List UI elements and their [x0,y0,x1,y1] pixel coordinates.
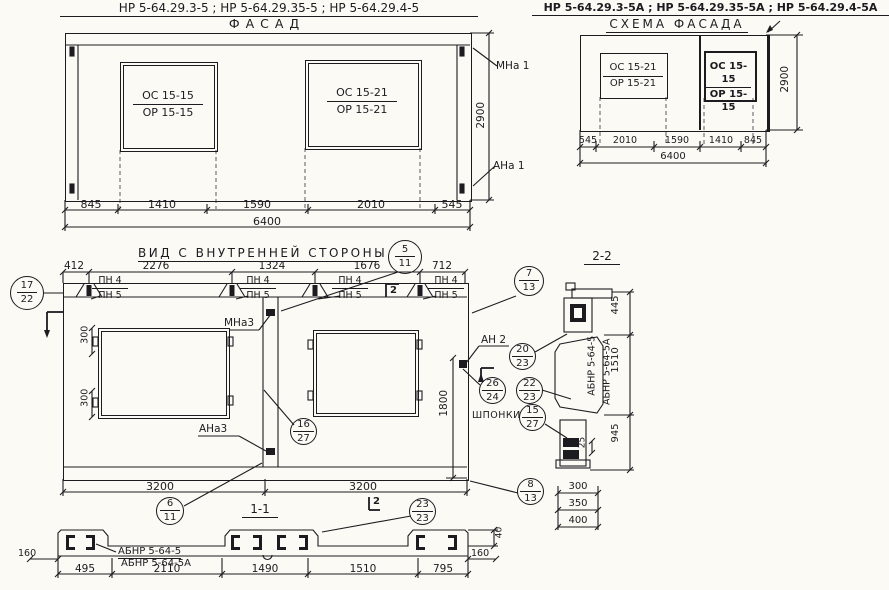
pn-top: ПН 4 [240,275,276,289]
inner-anchor-mark-ana3: АНа3 [199,424,227,435]
pn-bottom: ПН 5 [332,289,368,302]
inner-dim-300-bottom: 300 [80,381,90,415]
balloon-top-number: 23 [414,500,431,511]
balloon-bottom-number: 13 [519,280,540,293]
inner-dim-2276: 2276 [131,261,181,272]
sec22-dim-25: 25 [579,430,588,456]
window-mark-bottom: ОР 15-21 [603,77,663,91]
balloon-bottom-number: 23 [512,356,533,369]
schema-dim-2010: 2010 [605,136,645,146]
balloon-bottom-number: 22 [17,292,38,305]
inner-window-left-inner-frame [101,331,227,416]
pn-label-4: ПН 4 ПН 5 [428,275,464,302]
balloon-bottom-number: 11 [160,510,181,523]
sec11-dim-40: 40 [496,522,505,544]
sec11-dim-2110: 2110 [142,564,192,575]
sec11-dim-160-right: 160 [471,549,489,559]
balloon-bottom-number: 27 [522,417,543,430]
balloon-top-number: 26 [484,379,501,390]
balloon-bottom-number: 11 [395,256,416,269]
facade-dim-2010: 2010 [341,199,401,210]
schema-window-left-label: ОС 15-21 ОР 15-21 [603,62,663,90]
inner-dim-300-top: 300 [80,318,90,352]
section-cut-2-bottom-label: 2 [373,497,380,507]
balloon-top-number: 8 [525,480,535,491]
facade-window-left-label: ОС 15-15 ОР 15-15 [133,89,203,120]
inner-view-title: ВИД С ВНУТРЕННЕЙ СТОРОНЫ [138,247,378,262]
schema-window-right-label: ОС 15-15 ОР 15-15 [706,61,751,114]
pn-top: ПН 4 [332,275,368,289]
schema-heading: СХЕМА ФАСАДА [606,18,748,33]
sec22-panel-mark-a: АБНР 5-64-5 [587,332,597,400]
window-mark-top: ОС 15-21 [603,62,663,77]
balloon-22-23: 2223 [516,377,543,404]
window-mark-bottom: ОР 15-15 [133,105,203,120]
facade-dim-1590: 1590 [227,199,287,210]
inner-dim-1676: 1676 [342,261,392,272]
section-2-2-title: 2-2 [584,250,620,265]
balloon-top-number: 20 [514,345,531,356]
schema-dim-545: 545 [573,136,603,146]
sec22-dim-400: 400 [561,516,595,526]
facade-window-right-label: ОС 15-21 ОР 15-21 [327,86,397,117]
section-1-1-title: 1-1 [242,503,278,518]
balloon-26-24: 2624 [479,377,506,404]
sec22-dim-350: 350 [561,499,595,509]
sec11-dim-160-left: 160 [18,549,36,559]
facade-anchor-mark-upper: МНа 1 [496,61,529,72]
schema-codes-title: НР 5-64.29.3-5А ; НР 5-64.29.35-5А ; НР … [532,2,889,16]
balloon-bottom-number: 24 [482,390,503,403]
balloon-bottom-number: 13 [520,491,541,504]
balloon-5-11: 511 [388,240,422,274]
inner-window-right [313,330,419,417]
pn-bottom: ПН 5 [240,289,276,302]
pn-bottom: ПН 5 [428,289,464,302]
pn-label-2: ПН 4 ПН 5 [240,275,276,302]
balloon-top-number: 5 [400,245,410,256]
balloon-16-27: 1627 [290,418,317,445]
balloon-7-13: 713 [514,266,544,296]
facade-dim-total: 6400 [237,216,297,227]
balloon-bottom-number: 23 [519,390,540,403]
facade-codes-title: НР 5-64.29.3-5 ; НР 5-64.29.35-5 ; НР 5-… [60,2,478,17]
pn-top: ПН 4 [92,275,128,289]
pn-top: ПН 4 [428,275,464,289]
balloon-top-number: 17 [19,281,36,292]
window-mark-top: ОС 15-15 [706,61,751,88]
balloon-8-13: 813 [517,478,544,505]
window-mark-bottom: ОР 15-21 [327,102,397,117]
facade-heading: ФАСАД [203,18,331,34]
balloon-top-number: 22 [521,379,538,390]
inner-window-left [98,328,230,419]
balloon-17-22: 1722 [10,276,44,310]
schema-dim-845: 845 [739,136,767,146]
balloon-bottom-number: 23 [412,511,433,524]
balloon-bottom-number: 27 [293,431,314,444]
balloon-6-11: 611 [156,497,184,525]
window-mark-top: ОС 15-15 [133,89,203,105]
facade-dim-1410: 1410 [132,199,192,210]
facade-height-dim: 2900 [476,93,487,137]
sec22-dim-300: 300 [561,482,595,492]
sec11-dim-795: 795 [423,564,463,575]
schema-height-dim: 2900 [780,57,791,101]
inner-dim-1324: 1324 [247,261,297,272]
sec11-dim-1510: 1510 [338,564,388,575]
drawing-sheet: НР 5-64.29.3-5 ; НР 5-64.29.35-5 ; НР 5-… [0,0,889,590]
facade-dim-545: 545 [430,199,474,210]
facade-dim-845: 845 [66,199,116,210]
balloon-top-number: 6 [165,499,175,510]
inner-dim-3200-left: 3200 [135,481,185,492]
pn-label-3: ПН 4 ПН 5 [332,275,368,302]
inner-anchor-mark-mna3: МНа3 [224,318,254,329]
inner-dim-3200-right: 3200 [338,481,388,492]
inner-anchor-mark-an2: АН 2 [481,335,506,346]
sec22-dim-445: 445 [611,287,621,323]
window-mark-top: ОС 15-21 [327,86,397,102]
inner-dim-1800: 1800 [439,383,450,423]
schema-dim-total: 6400 [651,152,695,162]
balloon-top-number: 16 [295,420,312,431]
facade-anchor-mark-lower: АНа 1 [493,161,525,172]
inner-label-shponki: ШПОНКИ [472,411,521,421]
balloon-23-23: 2323 [409,498,436,525]
section-cut-2-top-label: 2 [390,286,397,296]
sec11-dim-1490: 1490 [240,564,290,575]
window-mark-bottom: ОР 15-15 [706,88,751,114]
schema-dim-1590: 1590 [657,136,697,146]
sec11-dim-495: 495 [65,564,105,575]
sec22-dim-945: 945 [611,415,621,451]
pn-label-1: ПН 4 ПН 5 [92,275,128,302]
balloon-20-23: 2023 [509,343,536,370]
balloon-15-27: 1527 [519,404,546,431]
inner-dim-712: 712 [422,261,462,272]
sec22-dim-1510: 1510 [611,342,621,378]
balloon-top-number: 7 [524,269,534,280]
pn-bottom: ПН 5 [92,289,128,302]
schema-dim-1410: 1410 [701,136,741,146]
inner-window-right-inner-frame [316,333,416,414]
inner-dim-412: 412 [54,261,94,272]
balloon-top-number: 15 [524,406,541,417]
